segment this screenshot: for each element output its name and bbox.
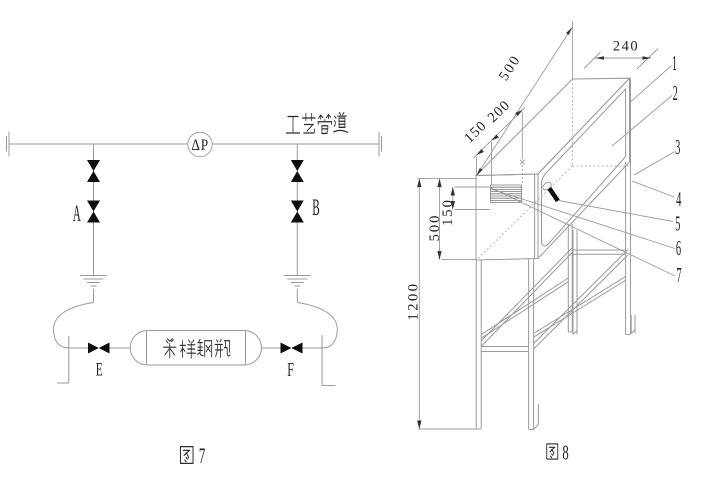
svg-text:7: 7 [676, 263, 681, 287]
svg-text:7: 7 [199, 443, 205, 467]
svg-text:2: 2 [673, 81, 678, 105]
svg-text:ΔP: ΔP [191, 137, 209, 154]
svg-text:150: 150 [461, 118, 490, 147]
svg-text:E: E [96, 360, 103, 381]
svg-text:200: 200 [485, 97, 514, 126]
svg-text:1: 1 [672, 51, 677, 75]
svg-text:A: A [73, 201, 81, 226]
svg-text:150: 150 [440, 198, 456, 226]
svg-text:8: 8 [562, 440, 569, 464]
svg-text:4: 4 [676, 187, 681, 211]
svg-text:3: 3 [675, 135, 680, 159]
svg-text:500: 500 [496, 52, 525, 84]
svg-text:F: F [287, 358, 294, 381]
svg-text:1200: 1200 [406, 282, 422, 321]
svg-text:240: 240 [613, 39, 639, 55]
svg-text:B: B [312, 195, 319, 220]
svg-text:5: 5 [675, 212, 680, 236]
svg-text:6: 6 [676, 236, 681, 260]
